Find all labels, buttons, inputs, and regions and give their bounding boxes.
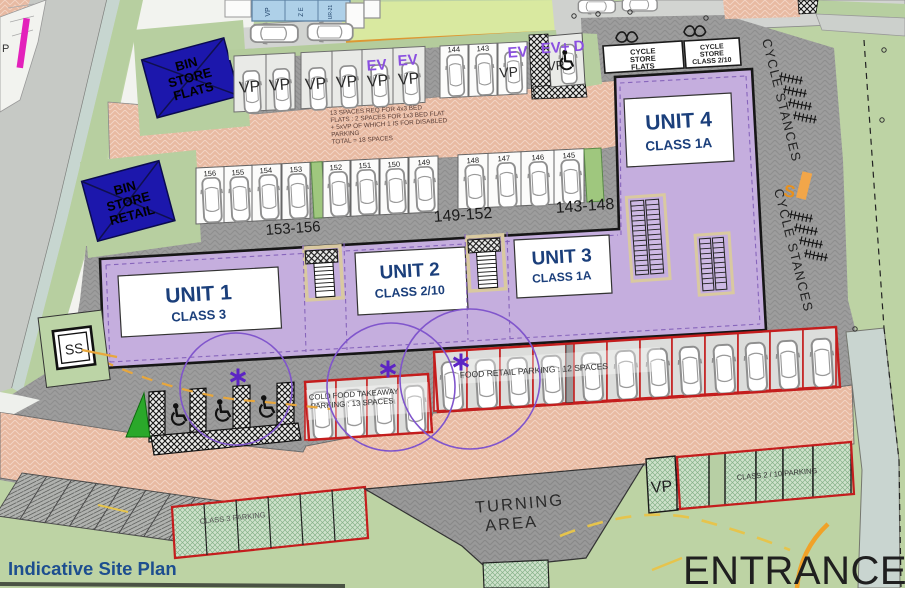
svg-text:EV: EV <box>366 56 387 74</box>
svg-text:EV+ D: EV+ D <box>540 37 585 57</box>
svg-text:145: 145 <box>562 151 575 161</box>
svg-text:FLATS: FLATS <box>631 61 655 71</box>
svg-text:Indicative Site Plan: Indicative Site Plan <box>8 558 177 579</box>
svg-text:VP: VP <box>335 73 357 91</box>
svg-text:VP: VP <box>650 478 673 497</box>
svg-text:147: 147 <box>497 154 510 164</box>
svg-text:P: P <box>2 43 9 55</box>
svg-text:148: 148 <box>466 156 479 166</box>
svg-text:153: 153 <box>289 165 302 175</box>
svg-text:VP: VP <box>238 78 260 96</box>
svg-text:146: 146 <box>531 153 544 163</box>
svg-text:143: 143 <box>476 44 489 54</box>
svg-text:VP: VP <box>268 76 290 94</box>
svg-text:ENTRANCE: ENTRANCE <box>683 549 905 588</box>
svg-text:156: 156 <box>203 169 216 179</box>
svg-text:UR-21: UR-21 <box>328 5 334 20</box>
svg-text:155: 155 <box>231 168 244 178</box>
svg-text:154: 154 <box>259 166 272 176</box>
svg-text:UNIT 1: UNIT 1 <box>165 281 233 308</box>
svg-text:EV: EV <box>507 43 528 61</box>
svg-text:152: 152 <box>329 163 342 173</box>
svg-text:VP: VP <box>366 72 388 90</box>
svg-text:SS: SS <box>64 340 84 358</box>
svg-text:VP: VP <box>499 63 519 80</box>
svg-text:150: 150 <box>387 160 400 170</box>
svg-text:VP: VP <box>265 7 272 17</box>
svg-text:VP: VP <box>397 70 419 88</box>
svg-text:EV: EV <box>397 51 418 69</box>
svg-text:Z E: Z E <box>299 7 305 16</box>
svg-text:151: 151 <box>358 161 371 171</box>
svg-text:VP: VP <box>304 75 326 93</box>
svg-text:149: 149 <box>417 158 430 168</box>
svg-text:144: 144 <box>447 45 460 55</box>
svg-text:UNIT 4: UNIT 4 <box>645 108 713 135</box>
svg-text:CLASS 3: CLASS 3 <box>171 306 227 324</box>
svg-text:UNIT 3: UNIT 3 <box>531 245 592 269</box>
svg-text:UNIT 2: UNIT 2 <box>379 259 440 283</box>
